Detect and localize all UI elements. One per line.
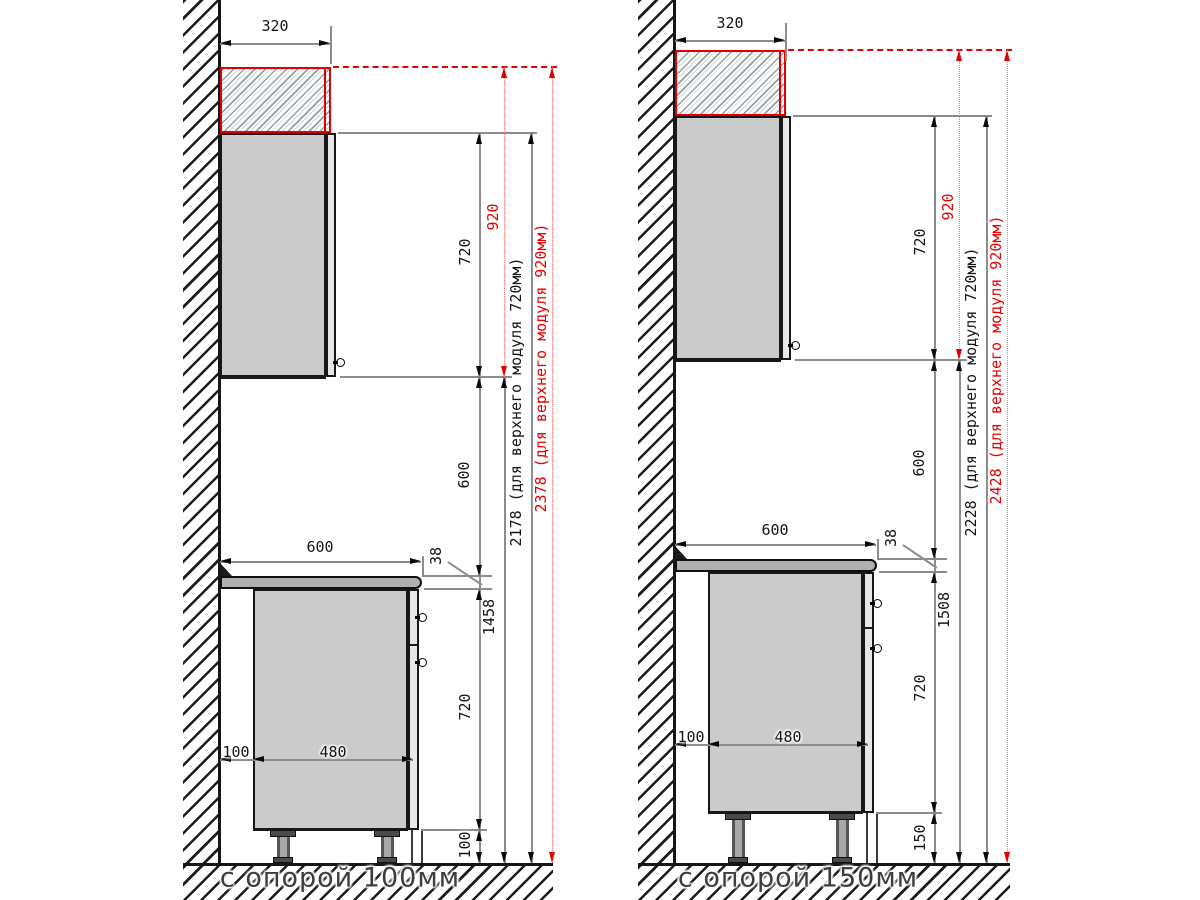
dim-arrow-icon — [931, 360, 937, 371]
door-knob — [415, 657, 427, 667]
dim-upper-height-920: 920 — [485, 203, 502, 230]
support-caption: с опорой 150мм — [678, 863, 918, 894]
drawer-divider — [408, 644, 419, 646]
dim-arrow-icon — [501, 67, 507, 78]
dim-arrow-icon — [220, 40, 231, 46]
dim-arrow-icon — [708, 741, 719, 747]
dim-arrow-icon — [931, 813, 937, 824]
ext-line — [877, 539, 879, 560]
adjustable-leg — [723, 813, 753, 863]
dim-upper-depth: 320 — [716, 15, 743, 32]
wall-corner-seal — [221, 564, 232, 576]
upper-cabinet — [220, 133, 326, 379]
dim-arrow-icon — [675, 37, 686, 43]
dim-arrow-icon — [476, 133, 482, 144]
dim-base-height: 720 — [912, 674, 929, 701]
dim-arrow-icon — [865, 541, 876, 547]
upper-cabinet-door — [326, 133, 336, 377]
dim-arrow-icon — [931, 548, 937, 559]
door-knob — [788, 340, 800, 350]
ext-line — [422, 556, 424, 577]
dim-arrow-icon — [253, 756, 264, 762]
dim-base-height: 720 — [457, 693, 474, 720]
dim-gap-600: 600 — [456, 461, 473, 488]
upper-extension-door-line — [779, 50, 781, 116]
dim-arrow-icon — [1004, 50, 1010, 61]
ext-line — [793, 115, 992, 117]
dim-upper-height-920: 920 — [940, 193, 957, 220]
ext-line — [340, 376, 512, 378]
base-cabinet-front — [863, 572, 874, 813]
door-knob — [870, 643, 882, 653]
upper-module-extension — [220, 67, 331, 133]
wall-corner-seal — [676, 547, 687, 559]
dim-arrow-icon — [528, 133, 534, 144]
dim-arrow-icon — [931, 116, 937, 127]
upper-cabinet — [675, 116, 781, 362]
dim-arrow-icon — [1004, 852, 1010, 863]
dim-arrow-icon — [956, 852, 962, 863]
wall-hatch — [638, 0, 676, 863]
ext-line — [785, 23, 787, 61]
dim-arrow-icon — [476, 819, 482, 830]
dim-line-total-920 — [1007, 50, 1008, 863]
dim-line — [959, 360, 961, 863]
dim-line-920-level — [333, 66, 557, 68]
dim-arrow-icon — [549, 852, 555, 863]
dim-base-depth: 480 — [774, 729, 801, 746]
base-cabinet-front — [408, 589, 419, 830]
dim-arrow-icon — [501, 852, 507, 863]
upper-extension-door-line — [324, 67, 326, 133]
base-cabinet — [253, 589, 408, 831]
dim-line-920-level — [788, 49, 1012, 51]
dim-arrow-icon — [528, 852, 534, 863]
dim-line — [675, 40, 785, 42]
door-knob — [333, 357, 345, 367]
door-knob — [415, 612, 427, 622]
adjustable-leg — [827, 813, 857, 863]
dim-gap-600: 600 — [911, 449, 928, 476]
dim-worktop-depth: 600 — [306, 539, 333, 556]
drawing-canvas: 320 720 920 600 600 38 1458 720 100 480 … — [0, 0, 1200, 900]
dim-total-920: 2428 (для верхнего модуля 920мм) — [988, 216, 1005, 505]
dim-arrow-icon — [983, 852, 989, 863]
dim-arrow-icon — [549, 67, 555, 78]
dim-line — [934, 116, 936, 863]
wall-hatch — [183, 0, 221, 863]
dim-arrow-icon — [931, 349, 937, 360]
dim-line — [220, 43, 330, 45]
dim-upper-depth: 320 — [261, 18, 288, 35]
dim-worktop-38: 38 — [883, 529, 900, 547]
leg-front-line — [411, 830, 423, 863]
dim-arrow-icon — [774, 37, 785, 43]
dim-support-height: 100 — [457, 831, 474, 858]
adjustable-leg — [268, 830, 298, 863]
countertop — [220, 576, 422, 589]
dim-floor-to-upper: 1508 — [936, 592, 953, 628]
dim-arrow-icon — [675, 541, 686, 547]
dim-arrow-icon — [931, 852, 937, 863]
dim-support-height: 150 — [912, 824, 929, 851]
dim-upper-height-720: 720 — [457, 238, 474, 265]
dim-arrow-icon — [476, 830, 482, 841]
ext-line — [338, 132, 537, 134]
upper-module-extension — [675, 50, 786, 116]
upper-cabinet-door — [781, 116, 791, 360]
dim-arrow-icon — [931, 572, 937, 583]
dim-line-920 — [504, 67, 505, 377]
dim-arrow-icon — [956, 50, 962, 61]
dim-total-720: 2178 (для верхнего модуля 720мм) — [508, 258, 525, 547]
base-cabinet — [708, 572, 863, 814]
dim-arrow-icon — [476, 377, 482, 388]
dim-arrow-icon — [983, 116, 989, 127]
dim-total-720: 2228 (для верхнего модуля 720мм) — [963, 248, 980, 537]
dim-worktop-38: 38 — [428, 547, 445, 565]
dim-total-920: 2378 (для верхнего модуля 920мм) — [533, 224, 550, 513]
dim-base-depth: 480 — [319, 744, 346, 761]
dim-wall-gap: 100 — [677, 729, 704, 746]
leg-front-line — [866, 813, 878, 863]
ext-line — [330, 26, 332, 64]
dim-line-total-920 — [552, 67, 553, 863]
dim-line-920 — [959, 50, 960, 360]
dim-arrow-icon — [931, 802, 937, 813]
dim-line — [504, 377, 506, 863]
dim-worktop-depth: 600 — [761, 522, 788, 539]
drawer-divider — [863, 627, 874, 629]
dim-floor-to-upper: 1458 — [481, 599, 498, 635]
dim-arrow-icon — [476, 852, 482, 863]
dim-line — [479, 133, 481, 863]
dim-wall-gap: 100 — [222, 744, 249, 761]
dim-arrow-icon — [476, 565, 482, 576]
support-caption: с опорой 100мм — [220, 863, 460, 894]
dim-upper-height-720: 720 — [912, 228, 929, 255]
ext-line — [795, 359, 967, 361]
door-knob — [870, 598, 882, 608]
dim-arrow-icon — [220, 558, 231, 564]
dim-arrow-icon — [476, 366, 482, 377]
dim-arrow-icon — [857, 741, 868, 747]
dim-line — [675, 544, 876, 546]
adjustable-leg — [372, 830, 402, 863]
dim-arrow-icon — [319, 40, 330, 46]
dim-arrow-icon — [402, 756, 413, 762]
dim-line — [220, 561, 421, 563]
dim-arrow-icon — [410, 558, 421, 564]
countertop — [675, 559, 877, 572]
